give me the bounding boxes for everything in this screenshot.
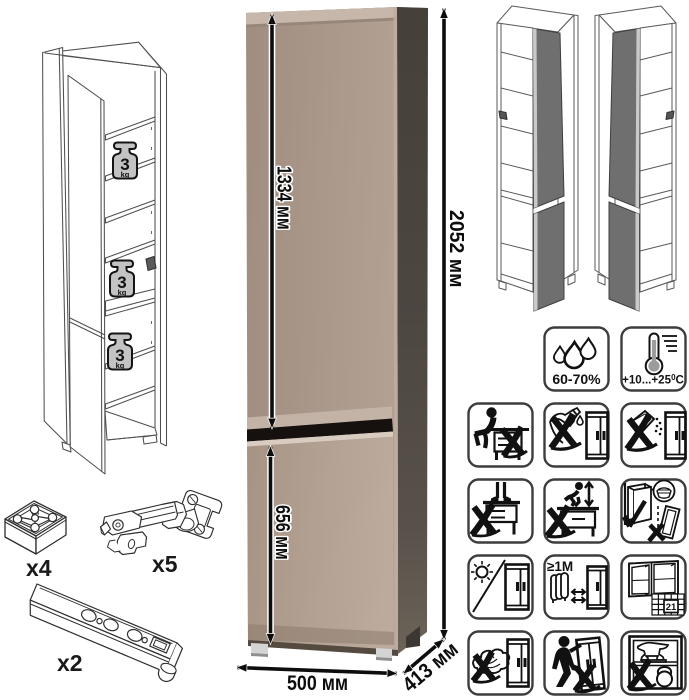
svg-text:kg: kg (116, 361, 125, 370)
svg-text:kg: kg (118, 288, 127, 297)
svg-text:60-70%: 60-70% (552, 371, 601, 387)
svg-text:656 мм: 656 мм (272, 505, 295, 560)
svg-text:21: 21 (666, 602, 677, 613)
svg-text:1334 мм: 1334 мм (273, 166, 296, 230)
svg-text:500 мм: 500 мм (287, 672, 348, 696)
svg-text:≥1М: ≥1М (547, 559, 573, 574)
svg-text:kg: kg (121, 170, 130, 179)
svg-text:x2: x2 (57, 650, 83, 676)
svg-text:+10...+250C: +10...+250C (622, 373, 684, 387)
svg-text:x5: x5 (152, 551, 178, 576)
svg-text:2052 мм: 2052 мм (445, 210, 468, 288)
